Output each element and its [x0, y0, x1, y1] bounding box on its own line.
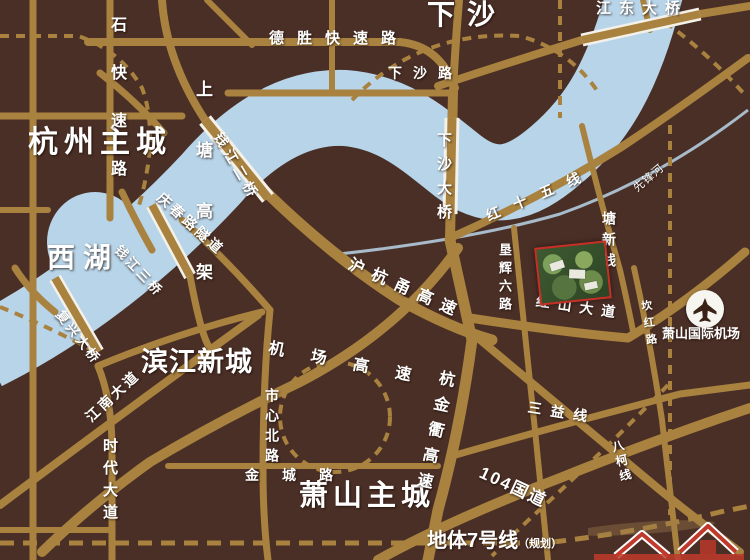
region-label-xiasha: 下沙	[427, 1, 507, 29]
road-label-xiasha-road: 下沙路	[388, 66, 463, 80]
site-building	[569, 269, 585, 279]
airport-icon	[686, 290, 724, 328]
road-label-qiushi-expressway: 秋石快速路	[108, 0, 124, 208]
site-building	[549, 260, 565, 272]
region-label-hangzhou: 杭州主城	[28, 128, 172, 158]
metro-line7-name: 地体7号线	[427, 530, 518, 552]
road-label-shixin-north-road: 市心北路	[265, 388, 279, 468]
road-label-xiasha-bridge: 下沙大桥	[436, 132, 451, 228]
road-label-kenhui-6th-road: 垦辉六路	[498, 243, 511, 315]
location-map: 杭州主城 下沙 西湖 滨江新城 萧山主城 秋石快速路 上塘高架 德胜快速路 下沙…	[0, 0, 750, 560]
watermark-logo	[588, 498, 750, 560]
metro-line7-planned-tag: （规划）	[518, 538, 562, 550]
road-label-desheng-expressway: 德胜快速路	[269, 31, 409, 46]
region-label-binjiang: 滨江新城	[141, 349, 253, 376]
site-building	[584, 281, 598, 291]
road-label-jiangdong-bridge: 江东大桥	[596, 1, 688, 16]
airplane-glyph	[692, 296, 718, 322]
road-label-jincheng-road: 金城路	[245, 468, 356, 482]
road-label-shangtang-viaduct: 上塘高架	[194, 80, 211, 324]
region-label-xihu: 西湖	[47, 244, 119, 272]
project-site-marker	[534, 240, 612, 305]
road-label-shidai-avenue: 时代大道	[102, 438, 117, 526]
airport-label: 萧山国际机场	[662, 327, 740, 340]
metro-line7-label: 地体7号线（规划）	[427, 531, 562, 551]
